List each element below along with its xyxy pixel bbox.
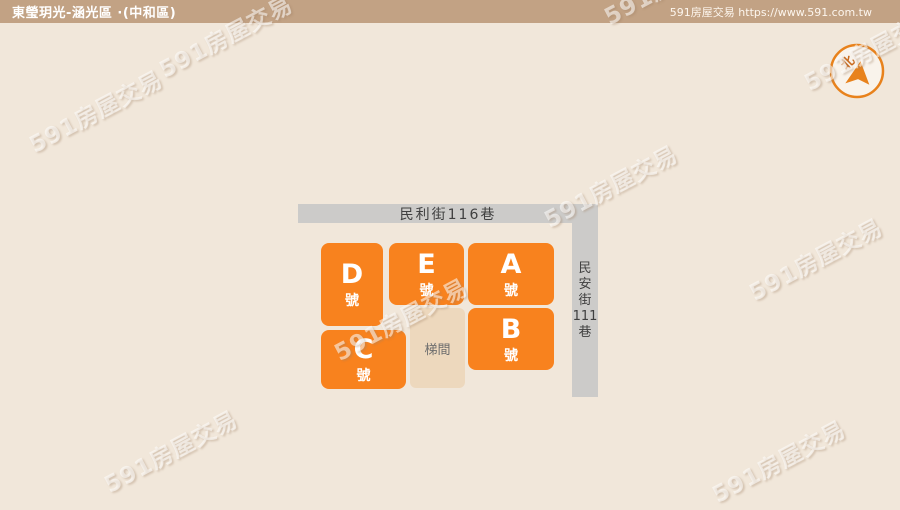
unit-block-a[interactable]: A 號	[468, 243, 554, 305]
unit-suffix: 號	[504, 284, 518, 298]
site-plan-page: 東瑩玥光-涵光區 ·(中和區) 591房屋交易 https://www.591.…	[0, 0, 900, 510]
unit-letter: A	[501, 251, 522, 278]
unit-letter: C	[354, 336, 374, 363]
unit-block-b[interactable]: B 號	[468, 308, 554, 370]
unit-block-d[interactable]: D 號	[321, 243, 383, 326]
street-label-minli-116: 民利街116巷	[400, 204, 497, 224]
unit-block-c[interactable]: C 號	[321, 330, 406, 389]
compass-svg: 北	[828, 42, 886, 100]
site-branding: 591房屋交易 https://www.591.com.tw	[670, 4, 900, 20]
stairwell-block: 梯間	[410, 308, 465, 388]
unit-suffix: 號	[420, 284, 434, 298]
street-minan-111: 民 安 街 111 巷	[572, 204, 598, 397]
street-label-char: 街	[578, 293, 591, 309]
compass-north-icon: 北	[828, 42, 886, 100]
unit-block-e[interactable]: E 號	[389, 243, 464, 305]
header-bar: 東瑩玥光-涵光區 ·(中和區) 591房屋交易 https://www.591.…	[0, 0, 900, 23]
unit-letter: B	[501, 316, 522, 343]
street-minli-116: 民利街116巷	[298, 204, 598, 223]
unit-suffix: 號	[504, 349, 518, 363]
page-title: 東瑩玥光-涵光區 ·(中和區)	[0, 2, 176, 21]
street-label-char: 安	[578, 277, 591, 293]
street-label-char: 巷	[578, 325, 591, 341]
unit-letter: D	[341, 261, 363, 288]
unit-suffix: 號	[345, 294, 359, 308]
stairwell-label: 梯間	[424, 339, 450, 358]
unit-suffix: 號	[357, 369, 371, 383]
street-label-char: 民	[578, 261, 591, 277]
site-plan: 民利街116巷 民 安 街 111 巷 D 號 E 號 A 號 B 號 C	[0, 0, 900, 510]
unit-letter: E	[417, 251, 435, 278]
street-label-char: 111	[573, 309, 598, 325]
